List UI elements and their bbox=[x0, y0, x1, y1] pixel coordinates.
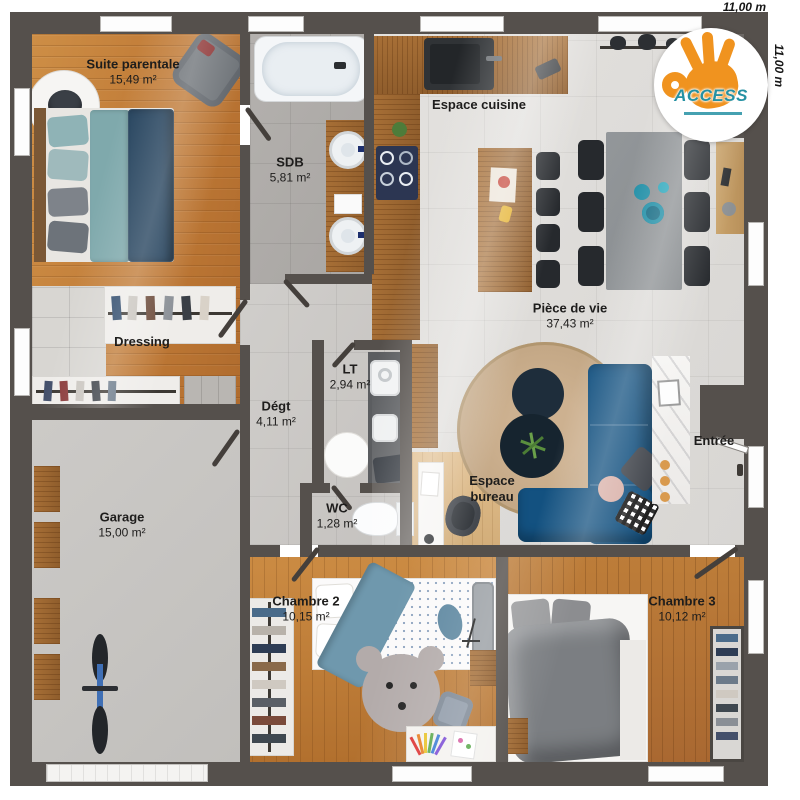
window bbox=[420, 16, 504, 32]
window bbox=[14, 88, 30, 156]
soap-tray bbox=[334, 194, 362, 214]
dining-chair bbox=[684, 246, 710, 286]
crayon-dot bbox=[458, 738, 463, 743]
clothes bbox=[252, 680, 286, 689]
wardrobe-rail bbox=[36, 390, 176, 393]
window bbox=[248, 16, 304, 32]
hanging-pot bbox=[638, 34, 656, 50]
wall-lt-right bbox=[400, 340, 412, 557]
garage-shelf bbox=[34, 466, 60, 512]
blanket-teal bbox=[90, 110, 130, 262]
wall-wc-top bbox=[360, 483, 412, 493]
nightstand-ch2 bbox=[470, 650, 496, 686]
table-decor-teal bbox=[642, 202, 664, 224]
room-name: LT bbox=[330, 362, 371, 378]
dining-chair bbox=[684, 192, 710, 232]
room-area: 10,15 m² bbox=[272, 610, 339, 624]
room-area: 10,12 m² bbox=[648, 610, 715, 624]
bathtub-faucet-icon bbox=[334, 62, 346, 69]
garage-door bbox=[46, 764, 208, 782]
window bbox=[392, 766, 472, 782]
wall-dressing-garage bbox=[32, 404, 240, 420]
wall-frame bbox=[657, 379, 681, 406]
crayon-dot bbox=[466, 744, 471, 749]
room-area: 37,43 m² bbox=[533, 317, 607, 331]
wall-dressing-degt bbox=[240, 345, 250, 408]
dryer bbox=[372, 414, 398, 442]
storage-boxes bbox=[184, 376, 236, 405]
clothes bbox=[716, 704, 738, 712]
wall-sdb-degt bbox=[285, 274, 372, 284]
room-label-garage: Garage 15,00 m² bbox=[98, 510, 145, 541]
clothes bbox=[716, 732, 738, 740]
clothes bbox=[59, 381, 68, 401]
window bbox=[648, 766, 724, 782]
room-label-dressing: Dressing bbox=[114, 334, 170, 350]
room-label-degt: Dégt 4,11 m² bbox=[256, 399, 296, 430]
window bbox=[100, 16, 172, 32]
clothes bbox=[75, 381, 84, 401]
room-name: Dégt bbox=[256, 399, 296, 415]
dining-chair bbox=[578, 246, 604, 286]
window bbox=[14, 328, 30, 396]
room-label-lt: LT 2,94 m² bbox=[330, 362, 371, 393]
room-name: Entrée bbox=[694, 433, 734, 449]
room-name: Espace bureau bbox=[460, 473, 524, 506]
pillow bbox=[47, 187, 88, 217]
teddy-rug bbox=[362, 654, 440, 732]
clothes bbox=[716, 648, 738, 656]
sofa-cushion-pink bbox=[598, 476, 624, 502]
logo-tagline-bar bbox=[684, 112, 742, 115]
clothes bbox=[127, 296, 137, 320]
wall-corridor-chambres bbox=[240, 545, 280, 557]
front-door-opening bbox=[748, 446, 764, 508]
dressing-cabinet bbox=[32, 286, 106, 378]
clothes bbox=[716, 662, 738, 670]
room-label-piece-de-vie: Pièce de vie 37,43 m² bbox=[533, 301, 607, 332]
counter-plant bbox=[392, 122, 407, 137]
blanket-navy bbox=[128, 109, 174, 262]
clothes bbox=[252, 662, 286, 671]
window bbox=[748, 580, 764, 654]
dimension-right: 11,00 m bbox=[772, 44, 786, 114]
clothes bbox=[716, 690, 738, 698]
burner bbox=[399, 151, 413, 165]
bar-stool bbox=[536, 188, 560, 216]
bike-wheel bbox=[92, 706, 108, 754]
burner bbox=[380, 172, 394, 186]
clothes bbox=[146, 296, 156, 320]
room-label-sdb: SDB 5,81 m² bbox=[270, 155, 311, 186]
bathtub-basin bbox=[262, 42, 360, 96]
washer-door bbox=[378, 368, 392, 382]
hanging-pot bbox=[610, 36, 626, 50]
room-label-entree: Entrée bbox=[694, 433, 734, 449]
basin-drain bbox=[341, 143, 355, 157]
pillow bbox=[47, 220, 89, 253]
wall-ch2-ch3 bbox=[496, 557, 508, 762]
wall-lt-left bbox=[312, 340, 324, 492]
room-area: 15,49 m² bbox=[86, 73, 179, 87]
clothes bbox=[111, 296, 122, 321]
clothes bbox=[716, 676, 738, 684]
room-label-suite-parentale: Suite parentale 15,49 m² bbox=[86, 57, 179, 88]
round-rug-small bbox=[324, 432, 370, 478]
desk-lamp bbox=[424, 534, 434, 544]
decor-dot bbox=[660, 476, 670, 486]
wall-sdb-cuisine bbox=[364, 34, 374, 274]
clothes bbox=[108, 381, 117, 401]
clothes bbox=[91, 381, 100, 402]
room-area: 1,28 m² bbox=[317, 517, 358, 531]
decor-dot bbox=[660, 492, 670, 502]
clothes bbox=[43, 381, 52, 402]
room-label-espace-cuisine: Espace cuisine bbox=[432, 97, 526, 113]
drawing-paper bbox=[450, 730, 477, 759]
room-name: Garage bbox=[98, 510, 145, 526]
bar-stool bbox=[536, 260, 560, 288]
wall-suite-sdb bbox=[240, 145, 250, 300]
dining-chair bbox=[684, 140, 710, 180]
room-name: Pièce de vie bbox=[533, 301, 607, 317]
sink-basin bbox=[430, 44, 480, 84]
teddy-eye bbox=[410, 682, 417, 689]
room-name: Espace cuisine bbox=[432, 97, 526, 113]
garage-shelf bbox=[34, 654, 60, 700]
clothes bbox=[252, 644, 286, 653]
burner bbox=[380, 151, 394, 165]
clothes bbox=[252, 698, 286, 707]
clothes bbox=[163, 296, 174, 321]
access-logo: ACCESS bbox=[654, 28, 768, 142]
pot bbox=[722, 202, 736, 216]
wall-suite-sdb bbox=[240, 34, 250, 105]
room-area: 4,11 m² bbox=[256, 415, 296, 429]
room-area: 2,94 m² bbox=[330, 378, 371, 392]
pillow bbox=[47, 149, 89, 182]
room-label-wc: WC 1,28 m² bbox=[317, 501, 358, 532]
desk-paper bbox=[420, 471, 440, 496]
marble-wall bbox=[652, 356, 690, 504]
wall-garage-right bbox=[240, 404, 250, 762]
wall-block-entree bbox=[700, 385, 744, 439]
basin-drain bbox=[341, 229, 355, 243]
window bbox=[598, 16, 702, 32]
sink-faucet-icon bbox=[486, 56, 502, 61]
wall-wc-left bbox=[300, 483, 312, 557]
room-area: 15,00 m² bbox=[98, 526, 145, 540]
bar-stool bbox=[536, 152, 560, 180]
clothes bbox=[252, 716, 286, 725]
clothes bbox=[252, 734, 286, 743]
room-area: 5,81 m² bbox=[270, 171, 311, 185]
headboard bbox=[34, 108, 46, 262]
dimension-top: 11,00 m bbox=[688, 0, 766, 14]
garage-shelf bbox=[34, 522, 60, 568]
logo-brand-text: ACCESS bbox=[664, 86, 758, 106]
decor-dot bbox=[660, 460, 670, 470]
room-name: Chambre 2 bbox=[272, 594, 339, 610]
sofa-seam bbox=[590, 424, 648, 426]
teddy-nose bbox=[398, 702, 406, 710]
coffee-table bbox=[512, 368, 564, 420]
sheet-white bbox=[620, 640, 646, 760]
toilet-bowl bbox=[352, 502, 398, 536]
wardrobe-rail bbox=[268, 602, 271, 752]
door-handle-icon bbox=[737, 464, 743, 476]
room-label-chambre2: Chambre 2 10,15 m² bbox=[272, 594, 339, 625]
clothes bbox=[181, 296, 192, 321]
clothes bbox=[252, 626, 286, 635]
room-name: SDB bbox=[270, 155, 311, 171]
room-name: WC bbox=[317, 501, 358, 517]
tall-cabinet bbox=[412, 344, 438, 448]
dining-chair bbox=[578, 140, 604, 180]
window bbox=[748, 222, 764, 286]
clothes bbox=[716, 718, 738, 726]
clothes bbox=[199, 296, 209, 320]
garage-shelf bbox=[34, 598, 60, 644]
bike-handlebar bbox=[82, 686, 118, 691]
floorplan-canvas: Suite parentale 15,49 m² SDB 5,81 m² Esp… bbox=[0, 0, 800, 800]
teddy-eye bbox=[386, 682, 393, 689]
room-label-espace-bureau: Espace bureau bbox=[460, 473, 524, 506]
room-name: Chambre 3 bbox=[648, 594, 715, 610]
dining-chair bbox=[578, 192, 604, 232]
bar-stool bbox=[536, 224, 560, 252]
table-decor-teal bbox=[658, 182, 669, 193]
room-name: Dressing bbox=[114, 334, 170, 350]
wall-corridor-chambres bbox=[318, 545, 690, 557]
clothes bbox=[716, 634, 738, 642]
room-name: Suite parentale bbox=[86, 57, 179, 73]
room-label-chambre3: Chambre 3 10,12 m² bbox=[648, 594, 715, 625]
floor-garage bbox=[32, 420, 240, 762]
music-stand bbox=[462, 640, 480, 642]
tomato bbox=[498, 176, 510, 188]
burner bbox=[399, 172, 413, 186]
pencil bbox=[424, 733, 427, 753]
sideboard bbox=[716, 142, 744, 234]
pillow bbox=[47, 114, 89, 147]
table-decor-teal bbox=[634, 184, 650, 200]
